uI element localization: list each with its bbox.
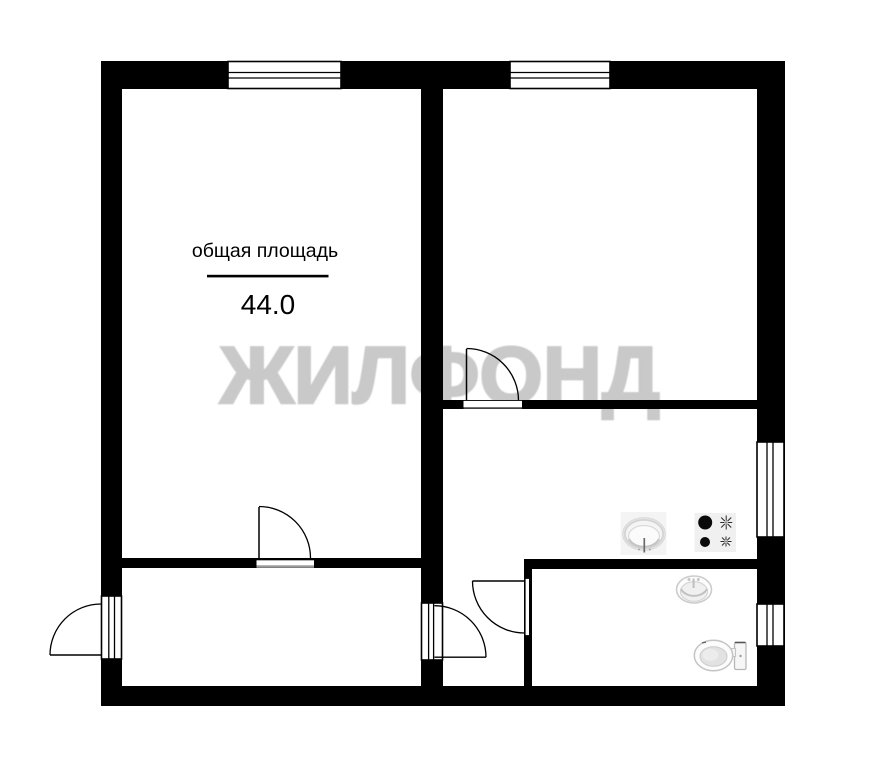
svg-text:общая площадь: общая площадь	[192, 240, 338, 262]
svg-text:44.0: 44.0	[241, 289, 296, 320]
